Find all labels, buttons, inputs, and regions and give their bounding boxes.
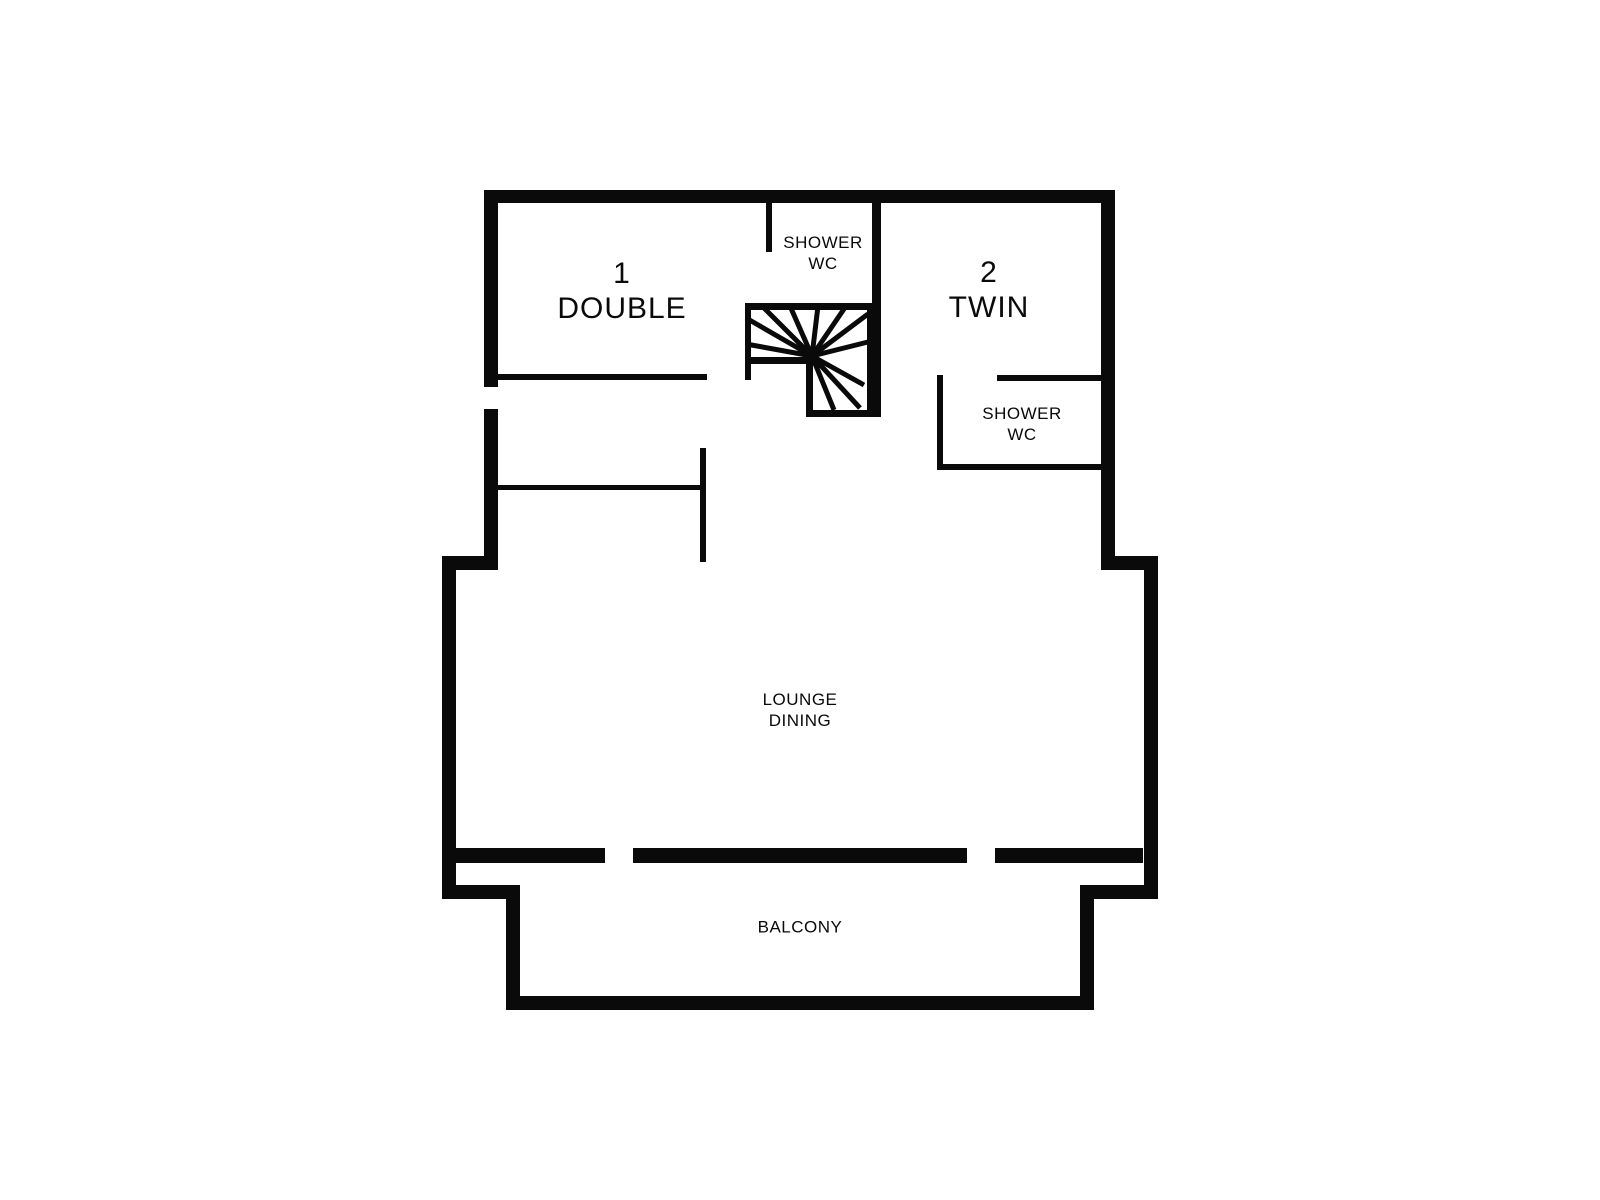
shower-right-line1: SHOWER xyxy=(982,403,1062,424)
lounge-line2: DINING xyxy=(763,710,838,731)
shower-top-line2: WC xyxy=(783,253,863,274)
room-label-twin: 2 TWIN xyxy=(949,255,1030,325)
shower-top-line1: SHOWER xyxy=(783,232,863,253)
room-label-double: 1 DOUBLE xyxy=(557,256,686,326)
room-name-twin: TWIN xyxy=(949,290,1030,325)
room-label-lounge-dining: LOUNGE DINING xyxy=(763,689,838,731)
room-name-double: DOUBLE xyxy=(557,291,686,326)
floorplan: 1 DOUBLE 2 TWIN SHOWER WC SHOWER WC LOUN… xyxy=(0,0,1600,1200)
room-label-shower-wc-top: SHOWER WC xyxy=(783,232,863,274)
floorplan-svg xyxy=(0,0,1600,1200)
room-number-double: 1 xyxy=(557,256,686,291)
room-number-twin: 2 xyxy=(949,255,1030,290)
balcony-name: BALCONY xyxy=(758,917,843,938)
shower-right-line2: WC xyxy=(982,424,1062,445)
room-label-shower-wc-right: SHOWER WC xyxy=(982,403,1062,445)
lounge-line1: LOUNGE xyxy=(763,689,838,710)
room-label-balcony: BALCONY xyxy=(758,917,843,938)
